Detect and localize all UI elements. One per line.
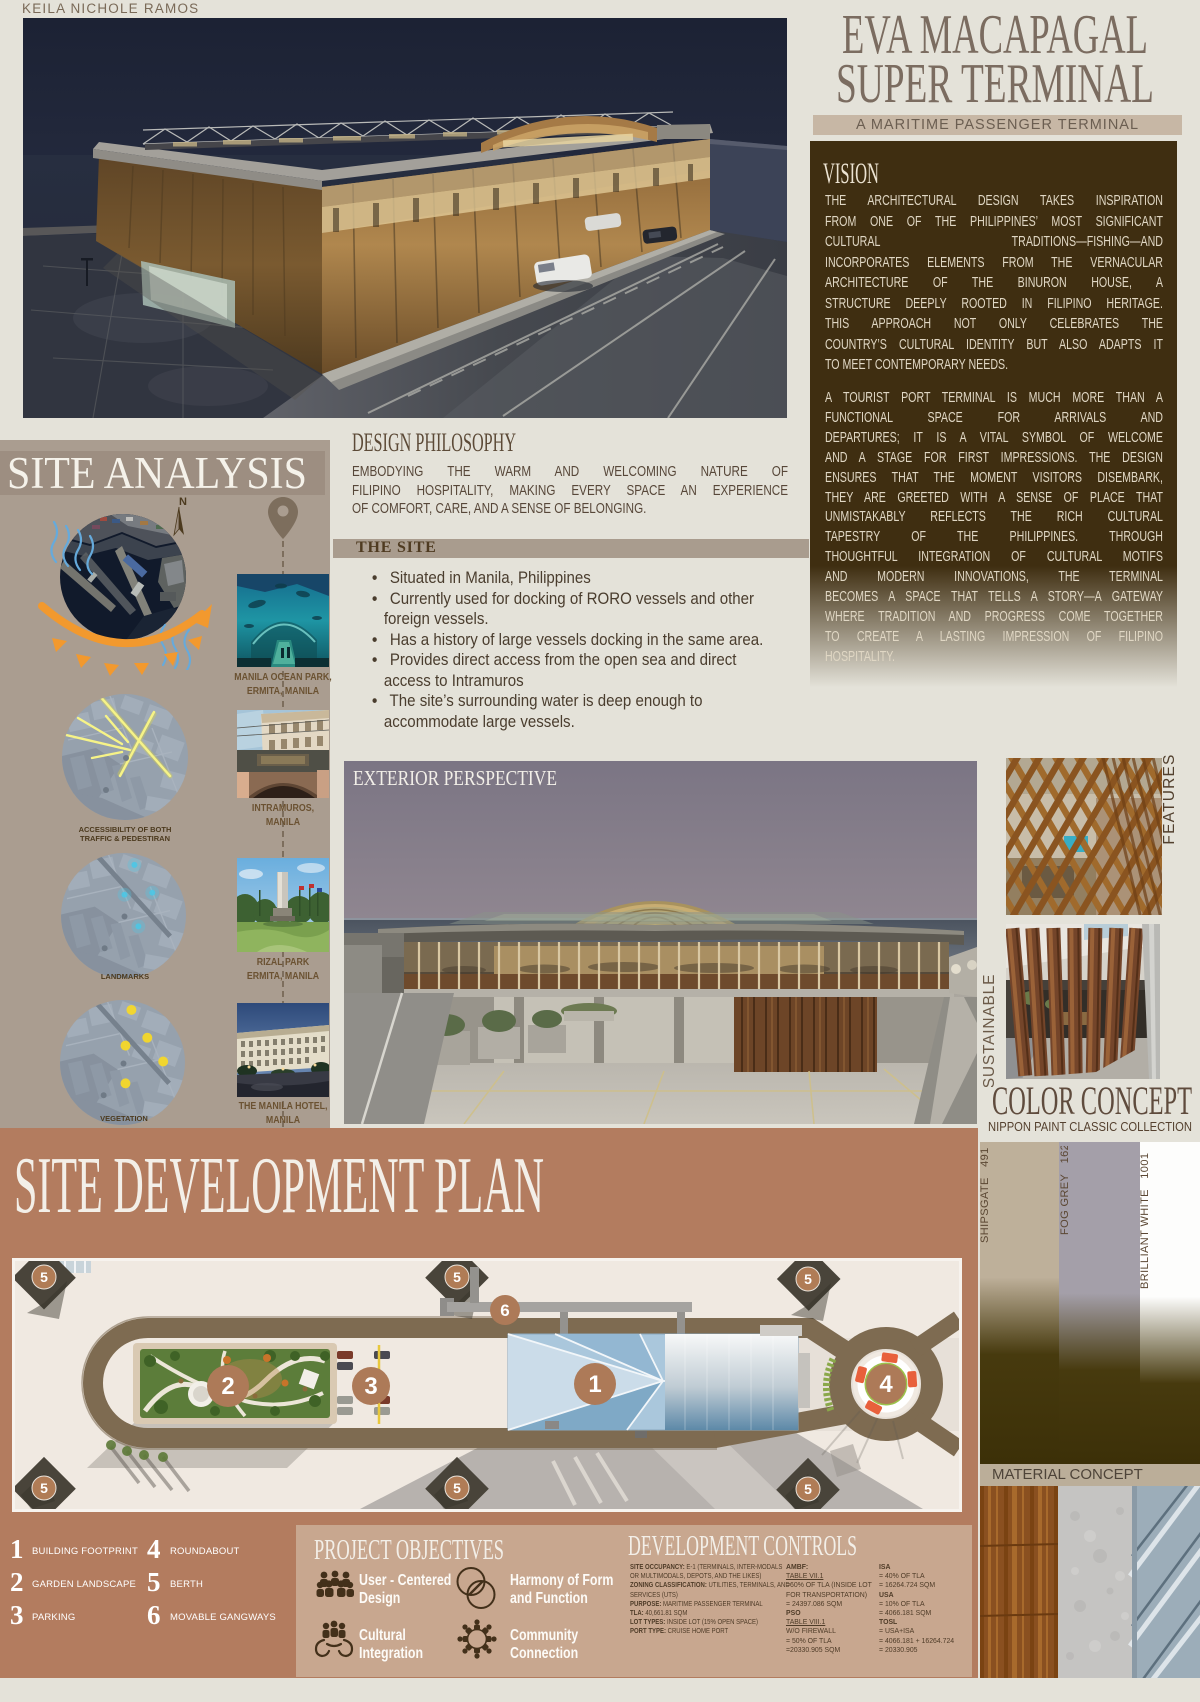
svg-text:EXTERIOR PERSPECTIVE: EXTERIOR PERSPECTIVE	[353, 766, 557, 790]
svg-text:BRILLIANT WHITE 1001: BRILLIANT WHITE 1001	[1139, 1153, 1151, 1289]
svg-text:1: 1	[588, 1371, 601, 1398]
svg-text:DEVELOPMENT CONTROLS: DEVELOPMENT CONTROLS	[628, 1530, 857, 1562]
svg-text:6: 6	[500, 1301, 509, 1320]
svg-text:5: 5	[453, 1480, 461, 1496]
svg-text:5: 5	[40, 1269, 48, 1285]
svg-text:PROJECT OBJECTIVES: PROJECT OBJECTIVES	[314, 1534, 504, 1566]
svg-text:VISION: VISION	[823, 157, 879, 190]
svg-text:5: 5	[453, 1269, 461, 1285]
svg-text:N: N	[179, 496, 187, 508]
svg-text:5: 5	[804, 1271, 812, 1287]
svg-text:SITE ANALYSIS: SITE ANALYSIS	[7, 450, 307, 498]
svg-text:FEATURES: FEATURES	[1162, 755, 1178, 845]
svg-text:SUSTAINABLE: SUSTAINABLE	[982, 975, 998, 1087]
svg-text:5: 5	[40, 1480, 48, 1496]
svg-text:5: 5	[804, 1481, 812, 1497]
svg-text:SITE DEVELOPMENT PLAN: SITE DEVELOPMENT PLAN	[14, 1150, 544, 1220]
svg-text:2: 2	[221, 1373, 234, 1400]
svg-text:DESIGN PHILOSOPHY: DESIGN PHILOSOPHY	[352, 428, 516, 457]
svg-text:FOG GREY 162: FOG GREY 162	[1059, 1146, 1071, 1235]
svg-text:4: 4	[879, 1371, 893, 1398]
svg-text:3: 3	[364, 1373, 377, 1400]
svg-text:SHIPSGATE 491: SHIPSGATE 491	[979, 1147, 991, 1243]
svg-text:SUPER TERMINAL: SUPER TERMINAL	[836, 53, 1154, 110]
svg-text:NIPPON PAINT CLASSIC COLLECTIO: NIPPON PAINT CLASSIC COLLECTION	[988, 1119, 1192, 1134]
svg-text:COLOR CONCEPT: COLOR CONCEPT	[992, 1086, 1192, 1122]
